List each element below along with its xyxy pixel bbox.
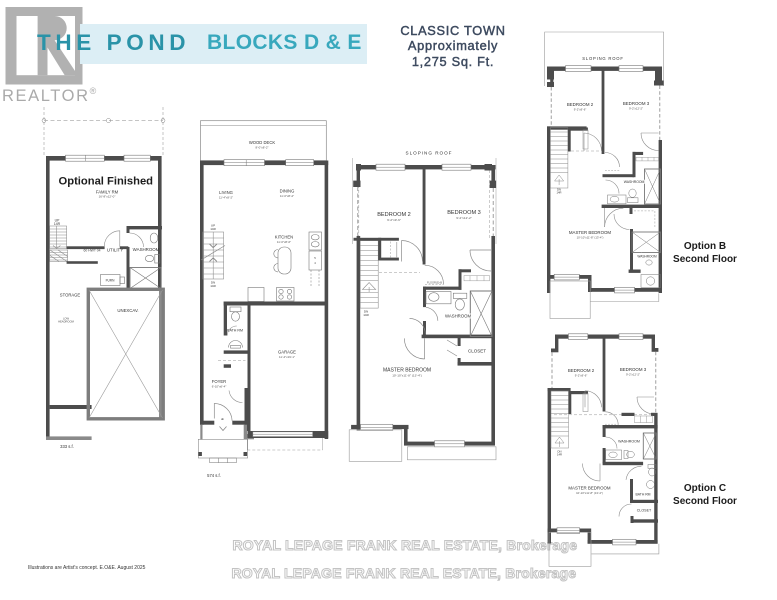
- svg-text:14R: 14R: [210, 284, 216, 288]
- svg-text:WASHROOM: WASHROOM: [618, 440, 640, 444]
- svg-text:GARAGE: GARAGE: [278, 350, 296, 355]
- svg-text:14R: 14R: [557, 453, 562, 457]
- svg-text:9'-2"x12'-2": 9'-2"x12'-2": [456, 216, 472, 220]
- svg-text:14R: 14R: [54, 222, 61, 226]
- svg-text:60 HWT 04: 60 HWT 04: [83, 248, 100, 252]
- svg-text:9'-2"x9'-6": 9'-2"x9'-6": [387, 218, 401, 222]
- svg-text:8'-0"x8'-2": 8'-0"x8'-2": [256, 146, 269, 150]
- svg-text:FURN: FURN: [106, 279, 116, 283]
- svg-text:14R: 14R: [363, 313, 369, 317]
- svg-text:10'-10"x11'-8" (13'-4"): 10'-10"x11'-8" (13'-4"): [576, 491, 603, 495]
- svg-text:MASTER BEDROOM: MASTER BEDROOM: [569, 230, 612, 235]
- svg-text:11'-4"x19'-1": 11'-4"x19'-1": [279, 355, 295, 359]
- svg-text:LIVING: LIVING: [219, 190, 233, 195]
- svg-text:BATH RM: BATH RM: [635, 493, 650, 497]
- svg-text:FOYER: FOYER: [212, 379, 226, 384]
- svg-text:CLOSET: CLOSET: [468, 349, 486, 354]
- svg-text:BEDROOM 3: BEDROOM 3: [623, 101, 650, 106]
- svg-text:BEDROOM 3: BEDROOM 3: [620, 367, 647, 372]
- svg-text:11'-0"x8'-2": 11'-0"x8'-2": [280, 194, 294, 198]
- svg-text:HEADROOM: HEADROOM: [58, 320, 75, 324]
- svg-text:5: 5: [314, 256, 316, 260]
- svg-text:10'-10"x11'-8" (13'-4"): 10'-10"x11'-8" (13'-4"): [392, 374, 422, 378]
- svg-text:11'-0"x8'-6": 11'-0"x8'-6": [277, 240, 291, 244]
- svg-text:UTILITY: UTILITY: [107, 248, 123, 253]
- svg-text:WASHROOM: WASHROOM: [445, 314, 472, 319]
- svg-text:10'-10"x11'-8" (13'-4"): 10'-10"x11'-8" (13'-4"): [577, 235, 604, 239]
- svg-text:WASHROOM: WASHROOM: [624, 180, 645, 184]
- svg-text:Optional Finished: Optional Finished: [59, 176, 154, 188]
- svg-text:BEDROOM 2: BEDROOM 2: [567, 102, 594, 107]
- svg-text:SLOPING ROOF: SLOPING ROOF: [406, 151, 453, 156]
- svg-text:9'-2"x9'-6": 9'-2"x9'-6": [574, 107, 587, 111]
- svg-text:FLOOR(S)-B: FLOOR(S)-B: [427, 281, 442, 285]
- svg-text:MASTER BEDROOM: MASTER BEDROOM: [568, 486, 611, 491]
- svg-text:9'-2"x9'-6": 9'-2"x9'-6": [575, 373, 588, 377]
- svg-text:UNEXCAV.: UNEXCAV.: [117, 308, 138, 313]
- svg-text:14R: 14R: [210, 227, 216, 231]
- svg-text:9'-2"x12'-2": 9'-2"x12'-2": [629, 106, 643, 110]
- svg-text:9'-2"x12'-2": 9'-2"x12'-2": [626, 372, 640, 376]
- svg-text:333 s.f.: 333 s.f.: [60, 444, 74, 449]
- svg-text:STORAGE: STORAGE: [60, 293, 81, 298]
- svg-text:11'-4"x9'-2": 11'-4"x9'-2": [219, 195, 233, 199]
- svg-text:14R: 14R: [557, 191, 562, 195]
- svg-text:WASHROOM: WASHROOM: [133, 247, 160, 252]
- svg-text:DINING: DINING: [280, 189, 295, 194]
- svg-text:574 s.f.: 574 s.f.: [207, 473, 221, 478]
- svg-text:CLOSET: CLOSET: [637, 509, 652, 513]
- svg-text:WOOD DECK: WOOD DECK: [249, 140, 275, 145]
- svg-text:KITCHEN: KITCHEN: [275, 235, 293, 240]
- svg-text:SLOPING ROOF: SLOPING ROOF: [582, 56, 623, 61]
- svg-text:16'-8"x12'-0": 16'-8"x12'-0": [99, 195, 116, 199]
- svg-text:BEDROOM 2: BEDROOM 2: [568, 368, 595, 373]
- svg-text:6'-10"x6'-4": 6'-10"x6'-4": [212, 384, 227, 388]
- svg-text:dn: dn: [221, 417, 225, 421]
- svg-text:4: 4: [314, 261, 316, 265]
